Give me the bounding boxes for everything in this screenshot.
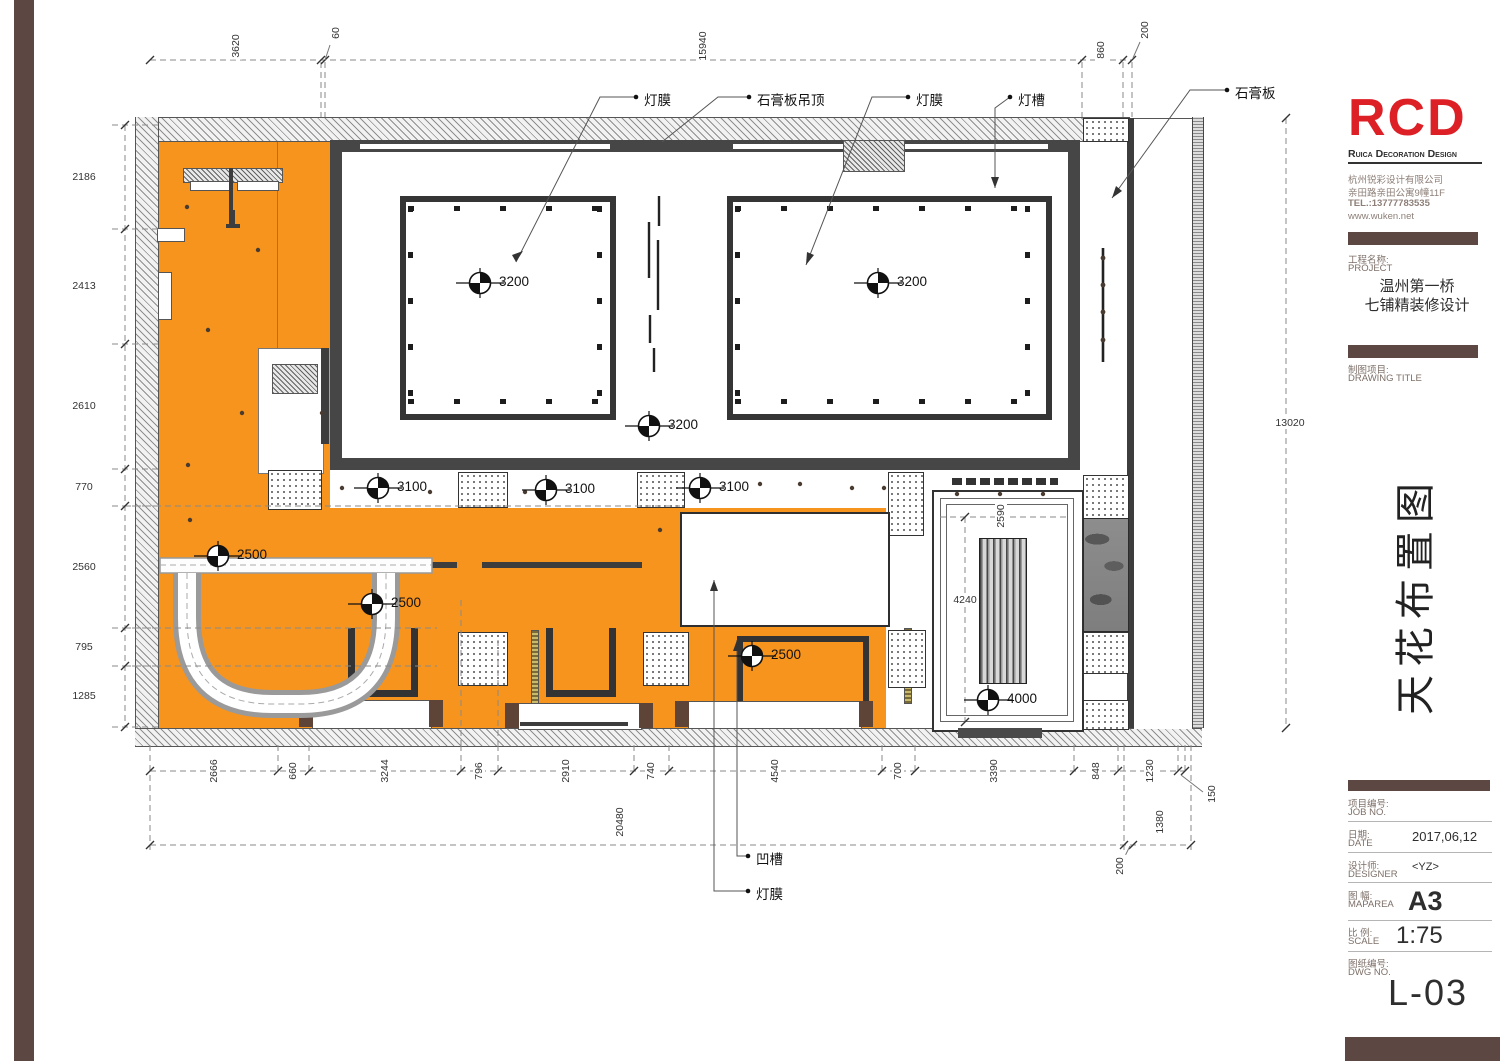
dim-bottom: 1230	[1144, 757, 1156, 784]
dimension-ticks	[121, 56, 1290, 849]
dim-left: 2413	[70, 280, 97, 292]
company-phone: TEL.:13777783535	[1348, 198, 1430, 209]
divider	[1348, 821, 1492, 822]
dim-left: 2186	[70, 171, 97, 183]
dim-inner: 2590	[995, 502, 1007, 529]
dim-right: 13020	[1273, 417, 1306, 429]
maparea-label-en: MAPAREA	[1348, 899, 1394, 910]
annotation-overlay	[0, 0, 1500, 1061]
separator-bar	[1348, 780, 1490, 791]
curved-ceiling-band	[160, 558, 432, 704]
project-name-line2: 七铺精装修设计	[1352, 294, 1482, 315]
project-label-en: PROJECT	[1348, 263, 1392, 274]
company-logo: RCD	[1348, 92, 1467, 144]
separator-bar	[1348, 232, 1478, 245]
bottom-corner-bar	[1345, 1037, 1500, 1061]
dim-bottom: 3244	[379, 757, 391, 784]
dim-bottom: 700	[892, 760, 904, 782]
leader-label-gypsum-board: 石膏板	[1235, 82, 1276, 102]
dim-top: 15940	[697, 29, 709, 62]
dim-bottom: 150	[1206, 783, 1218, 805]
dim-left: 1285	[70, 690, 97, 702]
designer-label-en: DESIGNER	[1348, 869, 1398, 880]
dim-top: 860	[1095, 39, 1107, 61]
level-label: 3200	[897, 274, 927, 289]
leader-label-light-film: 灯膜	[756, 883, 783, 903]
drawing-title-vertical: 天花布置图	[1383, 475, 1441, 715]
dim-bottom: 2666	[208, 757, 220, 784]
company-address: 亲田路亲田公寓9幢11F	[1348, 185, 1445, 199]
scale-value: 1:75	[1396, 922, 1443, 950]
level-label: 2500	[771, 647, 801, 662]
level-label: 3100	[397, 479, 427, 494]
dim-left: 770	[73, 481, 95, 493]
designer-value: <YZ>	[1412, 861, 1439, 873]
project-name-line1: 温州第一桥	[1352, 275, 1482, 296]
dwg-no-value: L-03	[1388, 972, 1468, 1014]
downlight-dots	[185, 205, 1106, 532]
leader-label-gypsum-ceiling: 石膏板吊顶	[757, 89, 825, 109]
level-markers	[194, 268, 1012, 715]
ceiling-plan-sheet: 3200 3200 3200 3100 3100 3100 2500 2500 …	[0, 0, 1500, 1061]
dim-bottom: 796	[473, 760, 485, 782]
maparea-value: A3	[1408, 886, 1443, 917]
level-label: 2500	[391, 595, 421, 610]
leader-label-light-cove: 灯槽	[1018, 89, 1045, 109]
dwg-no-label-en: DWG NO.	[1348, 967, 1391, 978]
divider	[1348, 852, 1492, 853]
dim-left: 795	[73, 641, 95, 653]
dim-bottom: 848	[1090, 760, 1102, 782]
company-name: 杭州锐彩设计有限公司	[1348, 172, 1443, 186]
separator-bar	[1348, 345, 1478, 358]
level-label: 3200	[668, 417, 698, 432]
divider	[1348, 882, 1492, 883]
level-label: 3100	[565, 481, 595, 496]
scale-label-en: SCALE	[1348, 936, 1379, 947]
dim-bottom: 3390	[988, 757, 1000, 784]
date-value: 2017,06,12	[1412, 829, 1477, 844]
divider	[1348, 920, 1492, 921]
dim-bottom: 740	[645, 760, 657, 782]
leader-label-groove: 凹槽	[756, 848, 783, 868]
level-label: 4000	[1007, 691, 1037, 706]
dim-bottom2: 1380	[1154, 808, 1166, 835]
date-label-en: DATE	[1348, 838, 1373, 849]
dim-top: 3620	[230, 32, 242, 59]
leader-arrows	[512, 177, 1122, 651]
dimension-lines	[112, 60, 1286, 850]
company-website: www.wuken.net	[1348, 211, 1414, 222]
label-leader-lines	[325, 42, 1203, 858]
dim-top: 200	[1139, 19, 1151, 41]
level-label: 3100	[719, 479, 749, 494]
drawing-title-label-en: DRAWING TITLE	[1348, 373, 1422, 384]
dim-bottom: 2910	[560, 757, 572, 784]
dim-left: 2610	[70, 400, 97, 412]
leader-label-light-film: 灯膜	[916, 89, 943, 109]
pendant-fixture-lines	[649, 196, 659, 372]
dim-bottom: 4540	[769, 757, 781, 784]
dim-top: 60	[330, 25, 342, 41]
level-label: 3200	[499, 274, 529, 289]
dim-bottom2: 200	[1114, 855, 1126, 877]
dim-bottom: 660	[287, 760, 299, 782]
dim-bottom2: 20480	[614, 805, 626, 838]
dim-inner: 4240	[951, 594, 978, 606]
job-no-label-en: JOB NO.	[1348, 807, 1386, 818]
level-label: 2500	[237, 547, 267, 562]
divider	[1348, 951, 1492, 952]
leader-label-light-film: 灯膜	[644, 89, 671, 109]
dim-left: 2560	[70, 561, 97, 573]
company-logo-subtitle: Ruica Decoration Design	[1348, 148, 1482, 164]
